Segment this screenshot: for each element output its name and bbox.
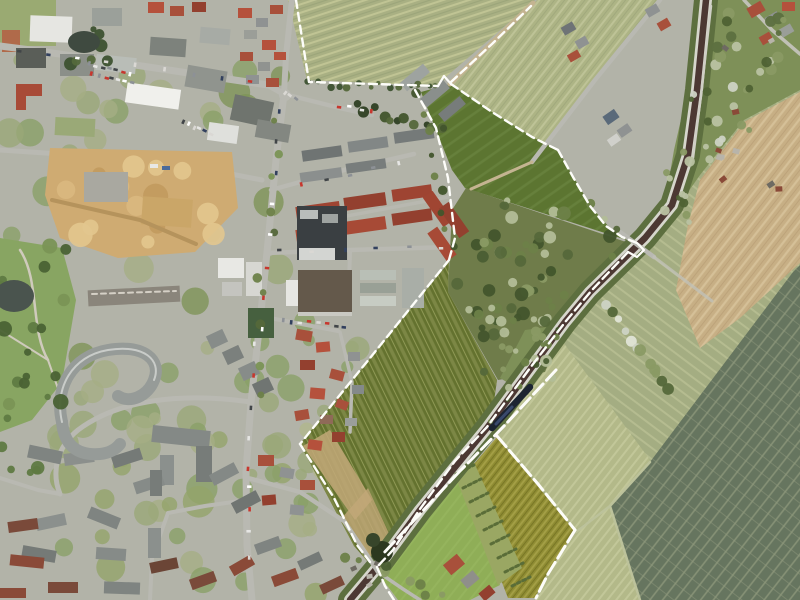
house [244,30,257,39]
allotment-trees [663,169,670,176]
street-trees [256,362,265,371]
park-trees [60,244,71,255]
allotment-trees [679,198,688,207]
house [192,2,206,12]
car [370,109,373,114]
woods-trees [531,316,537,322]
dirt-patches [173,162,191,180]
town-garden-green [134,501,159,526]
woods-trees [537,273,544,280]
woods-trees [506,303,516,313]
garden-pocket-trees [521,358,529,366]
container [150,164,158,168]
bottom-garden-trees [439,591,445,597]
allotment-trees [667,175,673,181]
car [341,326,346,329]
car [290,320,293,325]
allotment-trees [712,116,723,127]
house [270,5,283,14]
garden-pocket-trees [543,358,549,364]
apartment-block [96,547,127,561]
town-garden-green [124,253,154,283]
woods-trees [495,246,507,258]
woods-trees [508,278,517,287]
woods-trees [479,325,486,332]
woods-trees [483,284,496,297]
building-pad [84,172,128,202]
park-trees [3,398,15,410]
house [782,2,795,11]
allotment-trees [726,31,736,41]
house [316,341,331,352]
car [373,247,377,250]
car [439,247,443,250]
allotment-trees [746,127,752,133]
white-slab [299,248,335,260]
woods-trees [515,255,527,267]
woods-trees [496,316,507,327]
allotment-trees [776,30,782,36]
bushy-strip [386,117,393,124]
town-garden-green [81,380,104,403]
allotment-trees [761,57,771,67]
street-trees [275,150,283,158]
allotment-huts [775,186,782,192]
woods-trees [546,266,556,276]
apartment-block [104,581,140,594]
town-garden-green [169,528,185,544]
hall [55,117,96,137]
car [247,467,250,472]
house [300,360,315,370]
white-complex [222,282,242,296]
park-trees [45,394,51,400]
car [325,322,330,325]
car [307,320,312,323]
car [282,318,285,323]
car [268,233,273,236]
container [162,166,170,170]
woods-trees [546,222,553,229]
town-garden-green [295,469,307,481]
house [290,504,305,515]
hedgerow-blossom [615,315,622,322]
allotment-trees [780,17,786,23]
house-row [48,582,78,593]
dirt-patches [57,181,76,200]
car [407,245,411,248]
house [262,494,277,505]
town-garden-green [277,374,304,401]
white-building [286,280,298,306]
dirt-patches [141,235,154,248]
woods-trees [499,202,506,209]
woods-trees [560,291,569,300]
hedge-row [327,84,334,91]
hedgerow-blossom [622,327,630,335]
car [275,171,278,176]
allotment-trees [680,149,687,156]
town-garden-green [266,355,290,379]
woods-trees [451,278,463,290]
apartment-block [148,528,161,558]
bushy-strip [354,100,362,108]
boundary-bushes [431,173,439,181]
car [261,327,264,332]
garden-pocket-trees [505,384,513,392]
car [360,109,365,112]
house [332,432,345,442]
allotment-trees [732,42,742,52]
dirt-patches [202,223,224,245]
car [309,250,313,253]
town-garden-green [99,100,118,119]
allotment-trees [719,136,726,143]
town-garden-green [265,465,283,483]
park-trees [53,394,69,410]
car [297,321,302,324]
house [274,52,286,60]
town-garden-green [303,522,317,536]
house [352,385,364,394]
house [266,78,279,87]
allotment-trees [689,96,694,101]
allotment-trees [682,211,690,219]
allotment-trees [765,16,776,27]
bottom-garden-trees [405,576,414,585]
car [316,321,321,324]
car [278,109,281,114]
house [258,455,274,466]
boundary-bushes [421,111,428,118]
car [334,325,339,328]
pond [68,31,100,53]
woods-trees [480,368,488,376]
allotment-trees [722,16,732,26]
town-garden-green [55,538,73,556]
park-trees [58,294,70,306]
park-trees [19,378,30,389]
car [253,341,256,346]
bushy-strip [358,106,369,117]
supermarket-front [298,312,352,316]
boundary-bushes [441,226,447,232]
high-rise-roof [322,214,338,223]
house [256,18,268,27]
woods-trees [541,250,550,259]
car [248,507,251,511]
car [277,249,281,252]
hedgerow-blossom [652,369,660,377]
garden-pocket-trees [500,366,506,372]
greenhouse [360,270,396,280]
town-garden-green [95,489,115,509]
bottom-garden-trees [415,579,426,590]
house-row [0,588,26,598]
red-building [16,84,26,110]
bottom-garden-trees [340,553,350,563]
street-trees [255,319,265,329]
park-trees [39,261,51,273]
industrial-hall [92,8,122,26]
woods-trees [488,328,500,340]
hedge-row [336,84,342,90]
hedgerow-blossom [662,383,674,395]
hedgerow-blossom [607,307,617,317]
car [247,485,251,488]
bushy-strip [398,113,409,124]
house [246,75,259,84]
street-trees [257,391,264,398]
dirt-patches [68,223,92,247]
allotment-trees [686,219,692,225]
woods-trees [528,243,538,253]
hedgerow-blossom [634,344,646,356]
bushy-strip [440,125,447,132]
woods-trees [557,206,571,220]
dirt-patches [197,203,219,225]
woods-trees [479,238,489,248]
woods-trees [609,253,616,260]
scene [0,0,800,600]
park-trees [4,414,12,422]
allotment-trees [772,52,783,63]
aerial-imagery-canvas [0,0,800,600]
allotment-trees [745,85,753,93]
bushy-strip [409,120,419,130]
hedge-row [343,84,351,92]
white-complex [218,258,244,278]
allotment-trees [660,206,670,216]
bottom-garden-trees [421,591,430,600]
woods-trees [505,211,518,224]
supermarket-roof [298,270,352,314]
car [275,139,278,144]
woods-trees [563,249,574,260]
woods-trees [540,316,551,327]
woods-trees [549,303,556,310]
town-garden-green [265,432,291,458]
boundary-bushes [438,210,445,217]
town-garden-green [181,288,208,315]
street-trees [253,273,263,283]
hall [402,268,424,308]
park-trees [24,349,31,356]
industrial-hall [199,27,230,46]
woods-trees [488,305,495,312]
town-garden-green [95,529,110,544]
park-trees [7,466,15,474]
woods-trees [485,315,494,324]
house [258,62,270,71]
allotment-trees [703,144,709,150]
garden-pocket-trees [513,348,518,353]
woods-trees [474,310,484,320]
street-trees [266,207,275,216]
huts [366,574,373,579]
industrial-hall [149,37,186,57]
garden-pocket-trees [499,328,509,338]
car [337,106,342,109]
industrial-hall [30,15,73,42]
woods-trees [510,317,517,324]
car [270,202,275,205]
boundary-bushes [425,126,434,135]
bottom-garden-trees [356,557,362,563]
hedge-row [369,85,374,90]
car [247,436,250,441]
allotment-trees [703,87,712,96]
allotment-huts [718,154,725,160]
allotment-trees [679,191,686,198]
apartment-block [150,470,162,496]
allotment-trees [756,68,764,76]
park-trees [50,371,60,381]
town-garden-green [183,486,215,518]
garden-pocket-trees [499,343,506,350]
car [265,267,270,270]
house [238,8,252,18]
house [348,352,360,361]
railway-verge-trees [540,342,545,347]
woods-trees [478,330,490,342]
town-garden-green [60,76,86,102]
car [252,373,255,378]
woods-trees [534,232,545,243]
park-trees [42,238,57,253]
garden-pocket-trees [531,326,541,336]
high-rise-roof [300,210,318,219]
allotment-trees [704,117,712,125]
woods-trees [515,287,529,301]
allotment-trees [728,82,738,92]
allotment-trees [705,155,713,163]
allotment-trees [684,156,694,166]
house [148,2,164,13]
car [246,530,250,533]
woods-trees [544,231,556,243]
town-garden-green [126,415,154,443]
garden-pocket-trees [505,345,513,353]
park-trees [37,324,47,334]
house [170,6,184,16]
car [347,105,352,108]
greenhouse [360,283,396,293]
car [248,555,251,559]
house [307,439,322,451]
park-trees [32,466,41,475]
woods-trees [477,251,489,263]
house [310,387,326,399]
aerial-orthophoto [0,0,800,600]
street-trees [271,118,277,124]
boundary-bushes [438,186,447,195]
house [300,480,315,490]
house [262,40,276,50]
woods-trees [465,306,473,314]
woods-trees [545,297,552,304]
allotment-trees [712,42,723,53]
street-trees [268,173,274,179]
large-dark-tree [366,533,380,547]
street-trees [260,289,267,296]
car [249,406,252,411]
house [345,418,357,426]
greenhouse [360,296,396,306]
car [262,295,265,300]
house [240,52,253,61]
car [344,248,347,252]
allotment-trees [737,121,746,130]
boundary-bushes [429,153,434,158]
